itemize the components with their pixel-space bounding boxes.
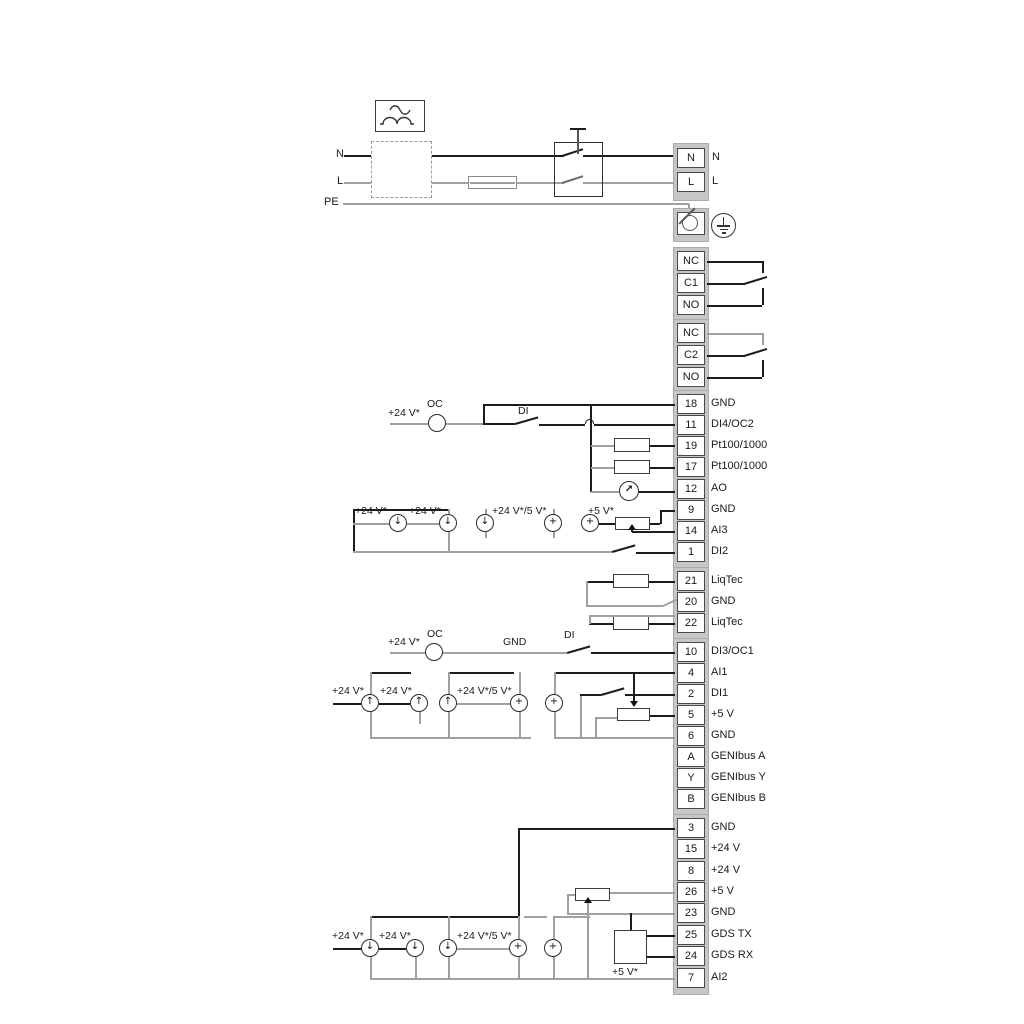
wire (630, 913, 632, 930)
plus24-label: +24 V* (355, 505, 387, 517)
wire (586, 581, 614, 583)
terminal-20-label: GND (711, 595, 735, 607)
wire (639, 491, 675, 493)
terminal-12-label: AO (711, 482, 727, 494)
wire (553, 916, 590, 918)
wire (353, 509, 355, 552)
potentiometer-ai1 (617, 708, 650, 721)
plus24-label: +24 V* (388, 636, 420, 648)
wire (649, 623, 675, 625)
wire-ai1 (555, 672, 675, 674)
wire (599, 523, 615, 525)
wire (650, 523, 660, 525)
relay1-contact-arm (744, 276, 767, 284)
terminal-10-label: DI3/OC1 (711, 645, 754, 657)
terminal-12: 12 (677, 479, 705, 499)
relay1-wire (707, 305, 762, 307)
terminal-19-label: Pt100/1000 (711, 439, 767, 451)
analog-output-meter: ↗ (619, 481, 639, 501)
relay1-c1: C1 (677, 273, 705, 293)
wire (379, 703, 410, 705)
source-circle-24v: ↓ (406, 939, 424, 957)
terminal-23: 23 (677, 903, 705, 923)
terminal-4-label: AI1 (711, 666, 728, 678)
relay2-wire (707, 377, 762, 379)
terminal-l: L (677, 172, 705, 192)
wire (448, 672, 514, 674)
wire-l (344, 182, 371, 184)
terminal-n-label: N (712, 151, 720, 163)
wire-5v-26 (610, 892, 675, 894)
surge-filter-box (371, 141, 432, 198)
pe-label: PE (324, 196, 339, 208)
terminal-14-label: AI3 (711, 524, 728, 536)
liqtec-sensor (613, 574, 649, 588)
relay2-wire (762, 333, 764, 345)
wire-gnd-18 (483, 404, 675, 406)
source-circle-5v: + (581, 514, 599, 532)
open-collector-circle (428, 414, 446, 432)
waveform-icon (376, 101, 423, 130)
terminal-3-label: GND (711, 821, 735, 833)
plus24-label: +24 V* (388, 407, 420, 419)
terminal-10: 10 (677, 642, 705, 662)
relay1-no: NO (677, 295, 705, 315)
terminal-5: 5 (677, 705, 705, 725)
relay2-wire (707, 355, 745, 357)
wire-gnd-6 (554, 737, 675, 739)
plus24-label: +24 V* (332, 685, 364, 697)
wire-l (432, 182, 468, 184)
open-collector-circle (425, 643, 443, 661)
relay1-wire (707, 261, 762, 263)
wire (379, 948, 406, 950)
main-switch-box (554, 142, 603, 197)
wire (353, 551, 612, 553)
plus5-label: +5 V* (612, 966, 638, 978)
source-circle-24v: ↑ (439, 694, 457, 712)
terminal-11-label: DI4/OC2 (711, 418, 754, 430)
wire-n (603, 155, 675, 157)
oc-label: OC (427, 398, 443, 410)
wire (649, 581, 675, 583)
n-left-label: N (336, 148, 344, 160)
terminal-n: N (677, 148, 705, 168)
plus24-label: +24 V* (409, 505, 441, 517)
pt100-resistor (614, 460, 650, 474)
gds-sensor-box (614, 930, 647, 964)
wire (595, 717, 597, 738)
terminal-23-label: GND (711, 906, 735, 918)
wire-di2 (636, 552, 675, 554)
terminal-1-label: DI2 (711, 545, 728, 557)
wire-5v (650, 715, 675, 717)
source-circle-24v: ↓ (476, 514, 494, 532)
wire (589, 615, 675, 617)
gnd-label: GND (503, 636, 526, 648)
wire (483, 423, 515, 425)
wire (333, 703, 361, 705)
terminal-24: 24 (677, 946, 705, 966)
source-circle-5v: + (544, 939, 562, 957)
terminal-18-label: GND (711, 397, 735, 409)
terminal-25-label: GDS TX (711, 928, 752, 940)
plus24-5-label: +24 V*/5 V* (457, 685, 512, 697)
di-label: DI (518, 405, 529, 417)
pt100-resistor (614, 438, 650, 452)
wire (580, 694, 601, 696)
terminal-9: 9 (677, 500, 705, 520)
source-circle-5v: + (509, 939, 527, 957)
terminal-14: 14 (677, 521, 705, 541)
relay2-wire (707, 333, 762, 335)
relay1-wire (762, 288, 764, 305)
earth-bar (717, 225, 730, 227)
source-circle-24v: ↓ (389, 514, 407, 532)
terminal-18: 18 (677, 394, 705, 414)
terminal-26-label: +5 V (711, 885, 734, 897)
wire (586, 605, 663, 607)
terminal-2: 2 (677, 684, 705, 704)
wire (390, 423, 428, 425)
terminal-17-label: Pt100/1000 (711, 460, 767, 472)
terminal-15-label: +24 V (711, 842, 740, 854)
wire-ai3 (632, 531, 675, 533)
source-circle-5v: + (545, 694, 563, 712)
terminal-22-label: LiqTec (711, 616, 743, 628)
terminal-9-label: GND (711, 503, 735, 515)
wire (660, 510, 662, 524)
wire (457, 703, 510, 705)
wire (587, 903, 589, 978)
wire (353, 509, 448, 511)
wire (567, 894, 569, 913)
wire (483, 404, 485, 424)
source-circle-24v: ↓ (439, 939, 457, 957)
potentiometer-ai2 (575, 888, 610, 901)
liqtec-sensor (613, 616, 649, 630)
terminal-20: 20 (677, 592, 705, 612)
source-circle-24v: ↑ (361, 694, 379, 712)
source-circle-5v: + (544, 514, 562, 532)
relay2-c2: C2 (677, 345, 705, 365)
terminal-a-label: GENIbus A (711, 750, 765, 762)
wire-di3 (591, 652, 675, 654)
plus24-label: +24 V* (379, 930, 411, 942)
relay1-wire (762, 261, 764, 273)
terminal-22: 22 (677, 613, 705, 633)
relay1-nc: NC (677, 251, 705, 271)
wire (591, 467, 614, 469)
wire (457, 948, 509, 950)
source-circle-5v: + (510, 694, 528, 712)
oc-label: OC (427, 628, 443, 640)
relay2-nc: NC (677, 323, 705, 343)
relay1-wire (707, 283, 745, 285)
wire-gnd-9 (660, 510, 675, 512)
wire (591, 445, 614, 447)
di-label: DI (564, 629, 575, 641)
source-circle-24v: ↑ (410, 694, 428, 712)
wire (633, 672, 635, 701)
terminal-24-label: GDS RX (711, 949, 753, 961)
terminal-11: 11 (677, 415, 705, 435)
wire-gds-rx (647, 956, 675, 958)
di1-switch-arm (601, 687, 624, 695)
wire (353, 523, 390, 525)
earth-stem (723, 217, 725, 225)
wire (419, 712, 421, 724)
wire-gds-tx (647, 935, 675, 937)
terminal-17: 17 (677, 457, 705, 477)
wire (370, 916, 518, 918)
earth-bar (722, 232, 726, 234)
source-circle-24v: ↓ (439, 514, 457, 532)
earth-bar (720, 229, 728, 231)
waveform-box (375, 100, 425, 132)
relay2-contact-arm (744, 348, 767, 356)
terminal-4: 4 (677, 663, 705, 683)
wire-l (603, 182, 675, 184)
wire (650, 445, 675, 447)
wire-di4 (594, 424, 675, 426)
wire (591, 491, 619, 493)
terminal-l-label: L (712, 175, 718, 187)
terminal-26: 26 (677, 882, 705, 902)
wire (590, 404, 592, 492)
relay2-no: NO (677, 367, 705, 387)
terminal-7-label: AI2 (711, 971, 728, 983)
plus24-5-label: +24 V*/5 V* (492, 505, 547, 517)
wire (370, 737, 531, 739)
terminal-y: Y (677, 768, 705, 788)
terminal-15: 15 (677, 839, 705, 859)
wire (580, 694, 582, 738)
plus24-label: +24 V* (380, 685, 412, 697)
terminal-6: 6 (677, 726, 705, 746)
wire (518, 828, 520, 916)
wiring-diagram: N L PE N L N L NC C1 NO NC C2 NO (0, 0, 1024, 1024)
fuse-wire (470, 182, 515, 184)
wire (390, 652, 425, 654)
wire (650, 467, 675, 469)
wire (446, 423, 483, 425)
terminal-3: 3 (677, 818, 705, 838)
terminal-a: A (677, 747, 705, 767)
wire-ai2 (370, 978, 675, 980)
switch-antenna-stem (577, 130, 579, 154)
wire-n (344, 155, 371, 157)
terminal-21-label: LiqTec (711, 574, 743, 586)
source-circle-24v: ↓ (361, 939, 379, 957)
terminal-b: B (677, 789, 705, 809)
wire-n (432, 155, 554, 157)
di-switch-arm (515, 416, 538, 424)
wire-l (517, 182, 554, 184)
wire (370, 672, 411, 674)
plus24-label: +24 V* (332, 930, 364, 942)
terminal-y-label: GENIbus Y (711, 771, 766, 783)
l-left-label: L (337, 175, 343, 187)
terminal-5-label: +5 V (711, 708, 734, 720)
wire (524, 916, 547, 918)
wire (415, 957, 417, 978)
di-switch-arm (567, 645, 590, 653)
wire (589, 623, 614, 625)
plus24-5-label: +24 V*/5 V* (457, 930, 512, 942)
terminal-6-label: GND (711, 729, 735, 741)
wiper-arrow (630, 701, 638, 707)
wire (443, 652, 567, 654)
terminal-8: 8 (677, 861, 705, 881)
terminal-b-label: GENIbus B (711, 792, 766, 804)
terminal-25: 25 (677, 925, 705, 945)
di2-switch-arm (612, 544, 635, 552)
relay2-wire (762, 360, 764, 377)
wire (333, 948, 361, 950)
wire-pe (343, 203, 689, 205)
wire-gnd-3 (518, 828, 675, 830)
terminal-19: 19 (677, 436, 705, 456)
terminal-1: 1 (677, 542, 705, 562)
terminal-8-label: +24 V (711, 864, 740, 876)
terminal-7: 7 (677, 968, 705, 988)
wire (539, 424, 585, 426)
terminal-2-label: DI1 (711, 687, 728, 699)
wire (586, 581, 588, 605)
wire (407, 523, 439, 525)
terminal-21: 21 (677, 571, 705, 591)
wire-gnd-23 (567, 913, 675, 915)
wire (595, 717, 617, 719)
